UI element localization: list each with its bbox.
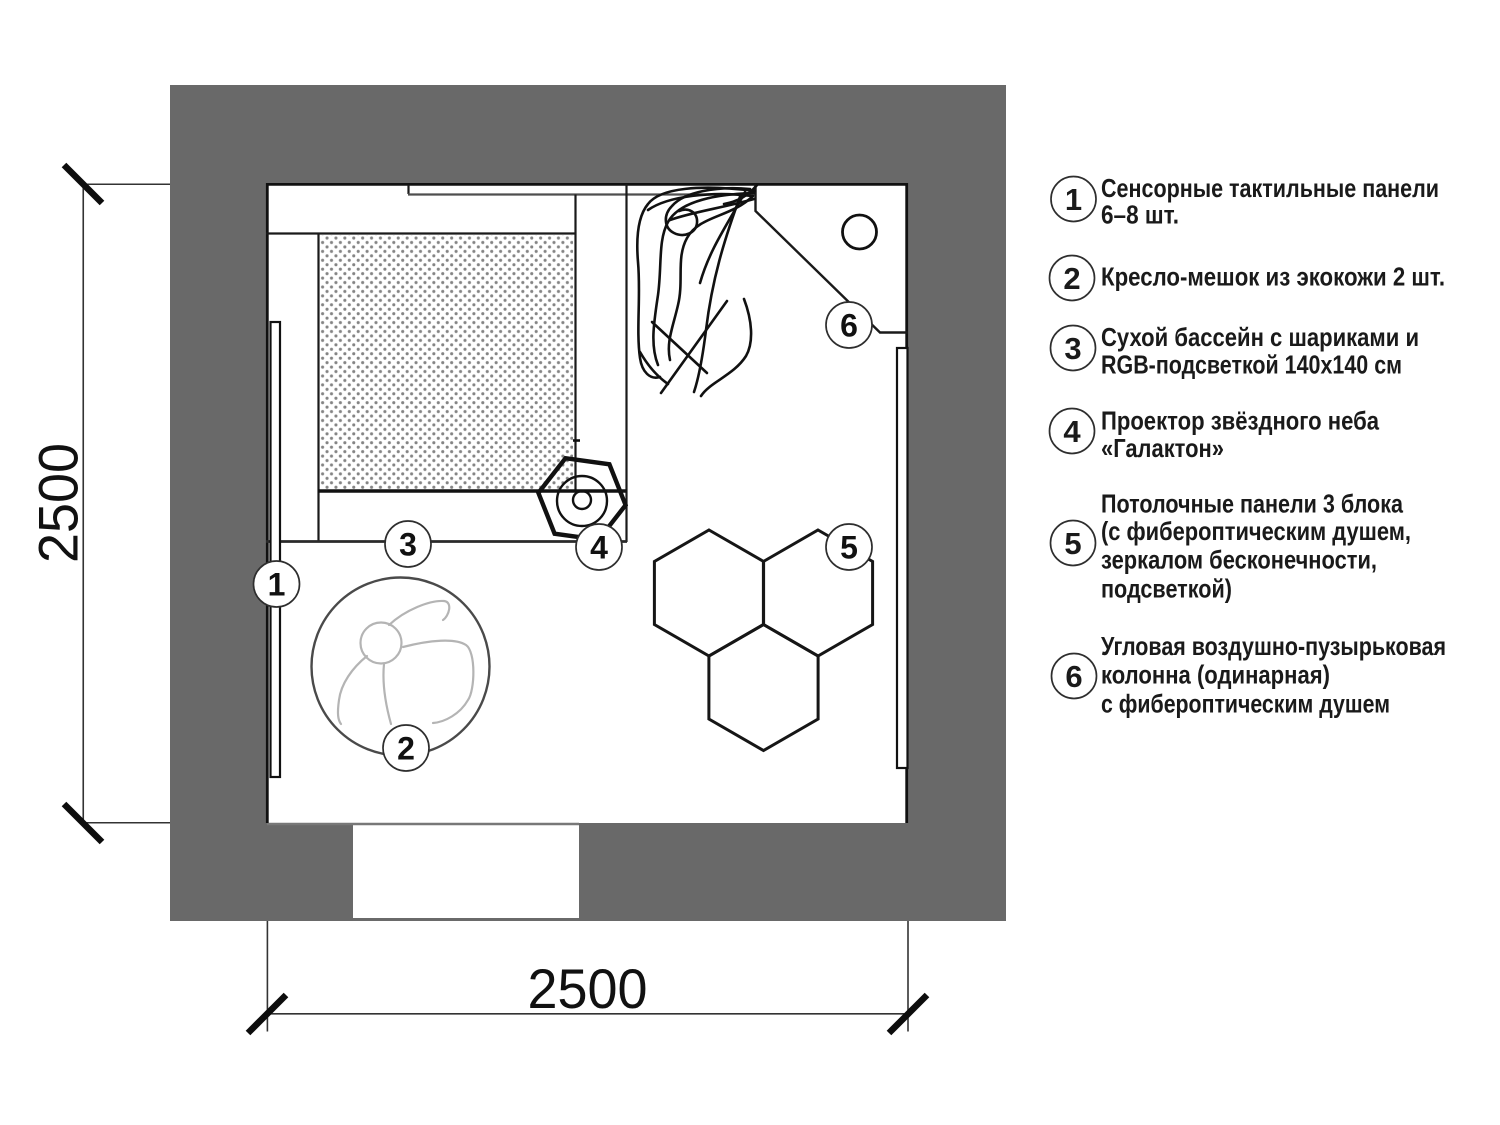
svg-text:с фибероптическим душем: с фибероптическим душем: [1101, 689, 1390, 719]
svg-text:2: 2: [1063, 261, 1080, 296]
svg-text:1: 1: [1065, 182, 1082, 217]
svg-text:4: 4: [590, 530, 608, 566]
svg-text:5: 5: [840, 530, 858, 566]
svg-text:RGB-подсветкой 140x140 см: RGB-подсветкой 140x140 см: [1101, 350, 1402, 380]
svg-text:5: 5: [1064, 526, 1081, 561]
svg-text:«Галактон»: «Галактон»: [1101, 433, 1224, 463]
svg-text:3: 3: [1064, 331, 1081, 366]
svg-text:2500: 2500: [27, 443, 90, 563]
svg-text:2: 2: [397, 731, 415, 767]
svg-text:(с фибероптическим душем,: (с фибероптическим душем,: [1101, 516, 1411, 546]
svg-text:Проектор звёздного неба: Проектор звёздного неба: [1101, 405, 1379, 435]
svg-text:подсветкой): подсветкой): [1101, 574, 1232, 604]
svg-text:6: 6: [1065, 659, 1082, 694]
svg-text:колонна (одинарная): колонна (одинарная): [1101, 660, 1330, 690]
svg-text:3: 3: [399, 527, 417, 563]
svg-text:2500: 2500: [528, 957, 648, 1020]
svg-text:зеркалом бесконечности,: зеркалом бесконечности,: [1101, 545, 1377, 575]
svg-text:1: 1: [268, 567, 286, 603]
svg-text:Сухой бассейн с шариками и: Сухой бассейн с шариками и: [1101, 322, 1419, 352]
svg-text:Потолочные панели 3 блока: Потолочные панели 3 блока: [1101, 489, 1403, 519]
svg-text:6–8 шт.: 6–8 шт.: [1101, 199, 1179, 229]
svg-text:Угловая воздушно-пузырьковая: Угловая воздушно-пузырьковая: [1101, 631, 1446, 661]
svg-text:4: 4: [1063, 414, 1081, 449]
svg-text:6: 6: [840, 308, 858, 344]
svg-text:Кресло-мешок из экокожи 2 шт.: Кресло-мешок из экокожи 2 шт.: [1101, 261, 1445, 291]
